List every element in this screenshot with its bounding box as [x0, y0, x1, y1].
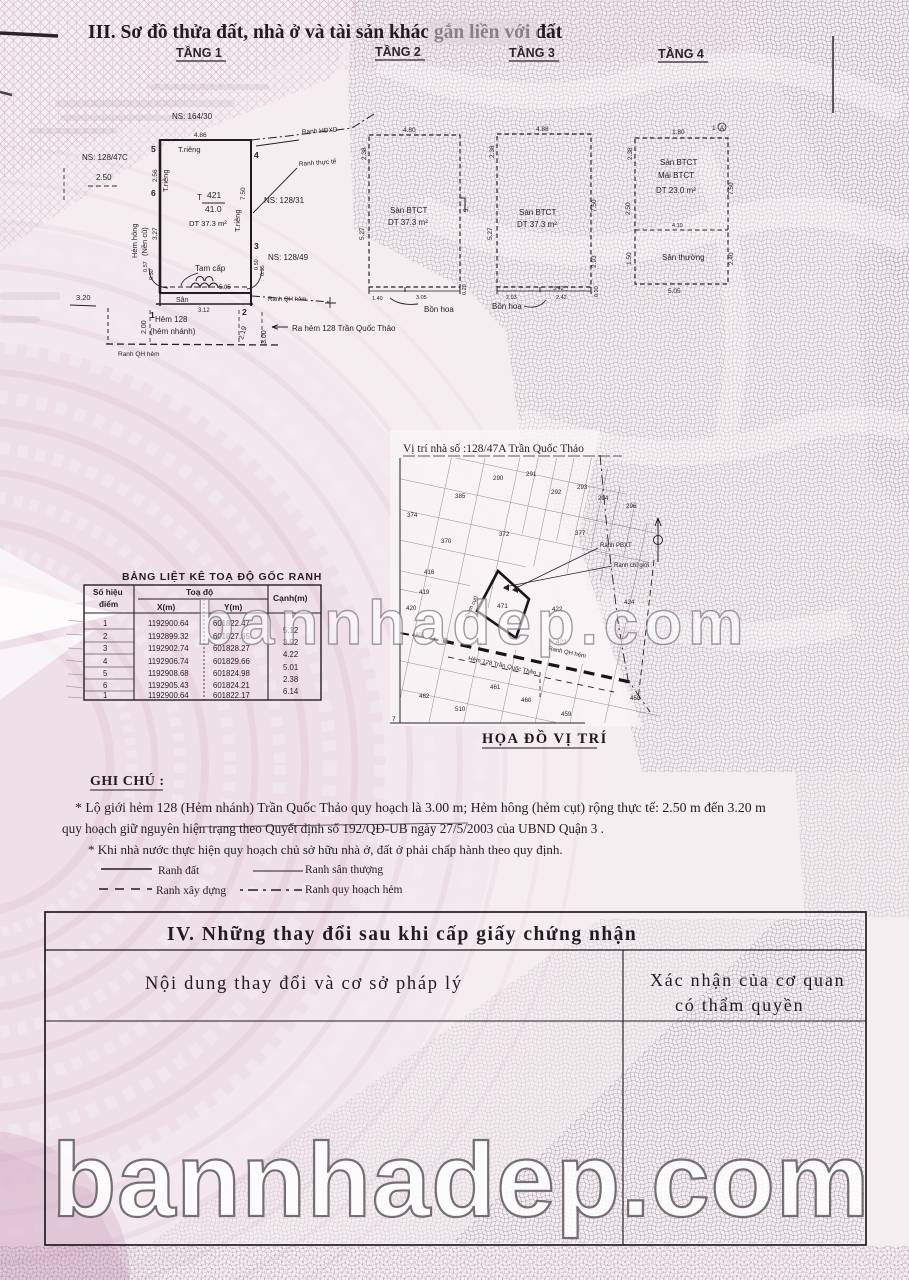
svg-text:HỌA ĐỒ VỊ TRÍ: HỌA ĐỒ VỊ TRÍ: [482, 729, 608, 747]
svg-text:4.10: 4.10: [672, 223, 683, 229]
svg-text:Tam cấp: Tam cấp: [195, 264, 226, 273]
svg-text:Ranh sân thượng: Ranh sân thượng: [305, 864, 383, 876]
svg-text:421: 421: [207, 190, 221, 200]
svg-text:296: 296: [626, 503, 637, 510]
svg-text:Ranh đất: Ranh đất: [158, 864, 200, 877]
svg-text:1192899.32: 1192899.32: [148, 632, 189, 641]
svg-text:Nội dung thay đổi và cơ sở phá: Nội dung thay đổi và cơ sở pháp lý: [145, 974, 463, 994]
svg-text:416: 416: [424, 569, 435, 576]
svg-text:Sàn BTCT: Sàn BTCT: [390, 206, 427, 215]
svg-text:Số hiệu: Số hiệu: [93, 588, 123, 597]
svg-text:374: 374: [407, 512, 418, 519]
svg-text:TẦNG 4: TẦNG 4: [658, 46, 704, 61]
svg-text:3: 3: [254, 241, 259, 251]
svg-text:460: 460: [521, 697, 532, 704]
svg-text:293: 293: [577, 484, 588, 491]
svg-text:6.14: 6.14: [283, 687, 299, 696]
svg-text:601824.21: 601824.21: [213, 681, 250, 690]
svg-text:1.80: 1.80: [672, 129, 685, 136]
svg-text:1192908.68: 1192908.68: [148, 669, 189, 678]
svg-text:2.42: 2.42: [556, 295, 567, 301]
svg-text:1: 1: [712, 125, 716, 132]
svg-text:2.00: 2.00: [141, 320, 148, 334]
svg-text:Hẻm 128: Hẻm 128: [155, 315, 188, 324]
svg-text:Ranh QH hẻm: Ranh QH hẻm: [268, 297, 306, 303]
svg-text:4: 4: [103, 657, 108, 666]
svg-text:7.50: 7.50: [240, 187, 247, 200]
svg-text:Sân thường: Sân thường: [662, 253, 705, 262]
svg-text:1: 1: [103, 691, 107, 700]
svg-text:NS: 128/31: NS: 128/31: [264, 196, 305, 205]
svg-text:NS: 128/49: NS: 128/49: [268, 253, 309, 262]
svg-text:5.01: 5.01: [283, 663, 298, 672]
svg-text:370: 370: [441, 538, 452, 545]
svg-text:5: 5: [151, 144, 156, 154]
svg-text:2.38: 2.38: [283, 675, 298, 684]
svg-text:Ranh QH hẻm: Ranh QH hẻm: [118, 351, 160, 358]
svg-text:2: 2: [242, 307, 247, 317]
svg-text:462: 462: [419, 693, 430, 700]
svg-text:* Khi nhà nước thực hiện quy h: * Khi nhà nước thực hiện quy hoạch chủ s…: [88, 842, 563, 857]
svg-text:5.27: 5.27: [359, 227, 366, 240]
svg-text:0.20: 0.20: [594, 286, 600, 297]
svg-text:377: 377: [575, 530, 586, 537]
svg-text:2.38: 2.38: [489, 145, 496, 158]
svg-text:1192902.74: 1192902.74: [148, 644, 189, 653]
svg-text:* Lộ giới hẻm 128 (Hẻm nhánh): * Lộ giới hẻm 128 (Hẻm nhánh) Trần Quốc …: [75, 800, 766, 816]
svg-text:4.80: 4.80: [403, 127, 416, 134]
svg-text:GHI CHÚ :: GHI CHÚ :: [90, 772, 165, 789]
svg-text:5.27: 5.27: [487, 227, 494, 240]
svg-text:Sàn BTCT: Sàn BTCT: [660, 158, 697, 167]
svg-text:5.: 5.: [464, 207, 470, 212]
svg-text:2.50: 2.50: [625, 202, 632, 215]
svg-text:có thẩm quyền: có thẩm quyền: [675, 995, 804, 1015]
svg-text:điểm: điểm: [99, 599, 118, 609]
svg-text:6: 6: [151, 188, 156, 198]
svg-text:Ranh xây dựng: Ranh xây dựng: [156, 885, 226, 897]
svg-text:NS: 128/47C: NS: 128/47C: [82, 153, 128, 162]
svg-text:1: 1: [103, 619, 107, 628]
svg-text:TẦNG 1: TẦNG 1: [176, 45, 222, 60]
svg-text:DT 23.0 m²: DT 23.0 m²: [656, 186, 696, 195]
svg-text:461: 461: [490, 684, 501, 691]
svg-text:Ranh PBXT: Ranh PBXT: [600, 543, 632, 549]
svg-text:3.42: 3.42: [553, 286, 564, 292]
svg-text:Bồn hoa: Bồn hoa: [424, 305, 454, 314]
svg-text:2.38: 2.38: [361, 147, 368, 160]
svg-text:(hẻm nhánh): (hẻm nhánh): [150, 327, 196, 336]
svg-text:bannhadep.com: bannhadep.com: [52, 1122, 870, 1239]
svg-text:2.38: 2.38: [627, 147, 634, 160]
svg-text:1.50: 1.50: [626, 252, 633, 265]
svg-text:bannhadep.com: bannhadep.com: [196, 589, 749, 658]
svg-text:2: 2: [103, 632, 107, 641]
svg-text:Ra hẻm 128 Trần Quốc Thảo: Ra hẻm 128 Trần Quốc Thảo: [292, 324, 396, 333]
svg-text:Ranh quy hoạch hẻm: Ranh quy hoạch hẻm: [305, 884, 402, 896]
svg-text:Sàn BTCT: Sàn BTCT: [519, 208, 556, 217]
svg-text:3.12: 3.12: [198, 308, 210, 314]
svg-text:1.40: 1.40: [372, 296, 383, 302]
svg-text:(Nền cũ): (Nền cũ): [140, 227, 149, 256]
svg-text:X(m): X(m): [157, 603, 175, 612]
svg-text:41.0: 41.0: [205, 204, 222, 214]
svg-text:3.05: 3.05: [416, 295, 427, 301]
svg-text:NS: 164/30: NS: 164/30: [172, 112, 213, 121]
svg-text:TẦNG 3: TẦNG 3: [509, 45, 555, 60]
svg-text:Vị trí nhà số :128/47A Trần Qu: Vị trí nhà số :128/47A Trần Quốc Thảo: [403, 442, 584, 455]
svg-text:Hẻm hông: Hẻm hông: [130, 223, 139, 258]
svg-text:290: 290: [493, 475, 504, 482]
svg-text:7.50: 7.50: [591, 199, 598, 212]
svg-text:5.05: 5.05: [219, 285, 231, 291]
svg-text:2.40: 2.40: [728, 252, 735, 265]
svg-text:2.03: 2.03: [506, 295, 517, 301]
svg-text:DT 37.3 m²: DT 37.3 m²: [388, 218, 428, 227]
svg-text:quy hoạch giữ nguyên hiện trạn: quy hoạch giữ nguyên hiện trạng theo Quy…: [62, 821, 604, 836]
svg-text:4.88: 4.88: [536, 126, 549, 133]
svg-text:DT 37.3 m²: DT 37.3 m²: [189, 219, 227, 228]
svg-text:4: 4: [254, 150, 259, 160]
svg-text:BẢNG LIỆT KÊ TOẠ ĐỘ GỐC RANH: BẢNG LIỆT KÊ TOẠ ĐỘ GỐC RANH: [122, 569, 322, 583]
svg-text:3: 3: [103, 644, 107, 653]
svg-text:2.56: 2.56: [152, 169, 159, 182]
svg-text:3.20: 3.20: [76, 293, 91, 302]
svg-text:T.riêng: T.riêng: [233, 209, 242, 232]
svg-text:Sân: Sân: [176, 297, 189, 304]
svg-text:459: 459: [561, 711, 572, 718]
svg-text:Xác nhận của cơ quan: Xác nhận của cơ quan: [650, 970, 845, 990]
svg-text:2.93: 2.93: [591, 255, 598, 268]
svg-text:6: 6: [103, 681, 107, 690]
svg-text:292: 292: [551, 489, 562, 496]
svg-text:372: 372: [499, 531, 510, 538]
svg-text:3.27: 3.27: [152, 227, 159, 240]
svg-text:1192900.64: 1192900.64: [148, 619, 189, 628]
svg-text:601822.17: 601822.17: [213, 691, 250, 700]
svg-text:1192900.64: 1192900.64: [148, 691, 189, 700]
svg-text:A: A: [720, 126, 724, 132]
svg-text:7.50: 7.50: [728, 182, 735, 195]
svg-text:TẦNG 2: TẦNG 2: [375, 44, 421, 59]
svg-text:4.86: 4.86: [194, 132, 207, 139]
svg-text:2.50: 2.50: [96, 173, 112, 182]
svg-text:1192906.74: 1192906.74: [148, 657, 189, 666]
svg-text:385: 385: [455, 493, 466, 500]
svg-text:0.20: 0.20: [462, 284, 468, 295]
svg-text:1192905.43: 1192905.43: [148, 681, 189, 690]
svg-text:7: 7: [392, 716, 396, 723]
svg-text:601824.98: 601824.98: [213, 669, 250, 678]
svg-text:291: 291: [526, 471, 537, 478]
svg-text:Mái BTCT: Mái BTCT: [658, 171, 694, 180]
svg-text:T.riêng: T.riêng: [178, 145, 201, 154]
svg-text:T.riêng: T.riêng: [161, 169, 170, 192]
svg-text:510: 510: [455, 706, 466, 713]
svg-text:Ranh chỉ giới: Ranh chỉ giới: [614, 562, 649, 569]
svg-text:5.05: 5.05: [668, 288, 681, 295]
svg-text:IV. Những thay đổi sau khi cấp: IV. Những thay đổi sau khi cấp giấy chứn…: [167, 924, 637, 945]
svg-text:601829.66: 601829.66: [213, 657, 250, 666]
svg-text:T: T: [197, 193, 202, 202]
svg-text:DT 37.3 m²: DT 37.3 m²: [517, 220, 557, 229]
svg-text:Bồn hoa: Bồn hoa: [492, 302, 522, 311]
svg-text:5: 5: [103, 669, 108, 678]
